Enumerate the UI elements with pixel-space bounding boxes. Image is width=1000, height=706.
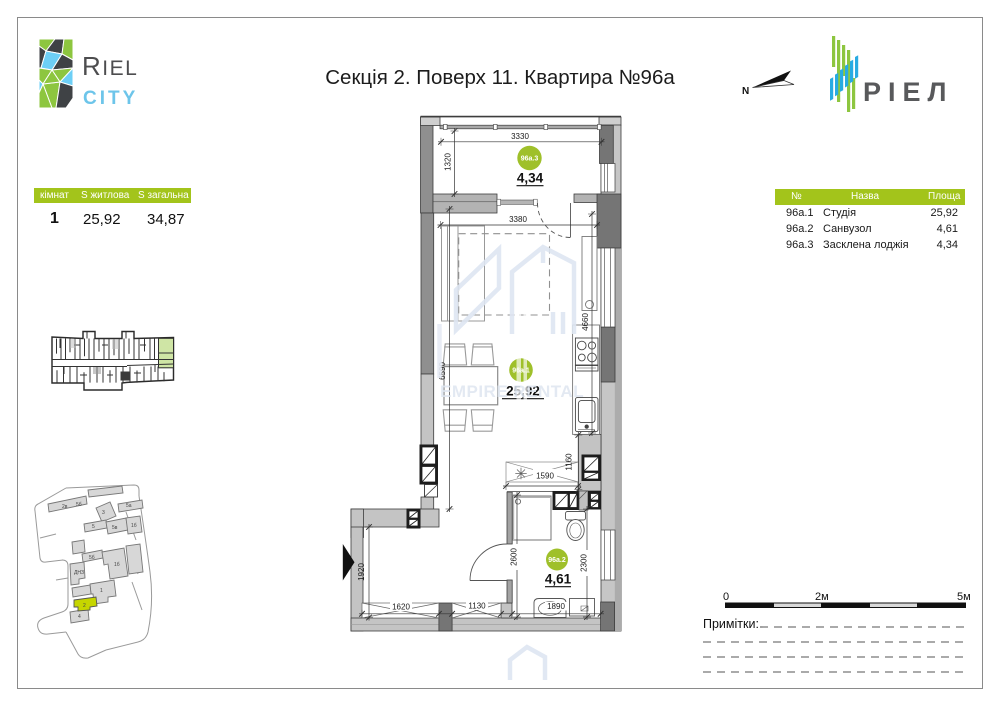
svg-text:1б: 1б (131, 523, 137, 529)
svg-text:5в: 5в (112, 525, 118, 531)
svg-text:96а.3: 96а.3 (521, 156, 539, 163)
svg-text:N: N (742, 86, 749, 97)
svg-text:2300: 2300 (579, 554, 588, 572)
svg-text:2в: 2в (62, 504, 68, 510)
svg-text:2: 2 (83, 603, 86, 609)
svg-text:3380: 3380 (509, 215, 527, 224)
svg-text:1320: 1320 (444, 153, 453, 171)
svg-text:1590: 1590 (536, 472, 554, 481)
svg-text:4660: 4660 (581, 313, 590, 331)
svg-text:EMPIRE RENTAL: EMPIRE RENTAL (440, 382, 584, 401)
svg-text:4,61: 4,61 (545, 572, 572, 587)
svg-text:1620: 1620 (392, 603, 410, 612)
svg-text:ДНЗ: ДНЗ (74, 570, 84, 576)
svg-text:5б: 5б (89, 555, 95, 561)
svg-text:3330: 3330 (511, 132, 529, 141)
svg-text:96а.1: 96а.1 (512, 368, 530, 375)
svg-text:5а: 5а (126, 503, 132, 509)
svg-text:2600: 2600 (509, 548, 518, 566)
svg-text:РІЕЛ: РІЕЛ (863, 77, 953, 107)
svg-text:5б: 5б (76, 502, 82, 508)
svg-text:1130: 1130 (468, 602, 486, 611)
svg-text:4: 4 (78, 614, 81, 620)
svg-text:1: 1 (100, 588, 103, 594)
svg-text:5: 5 (92, 524, 95, 530)
svg-text:1890: 1890 (547, 602, 565, 611)
svg-text:5м: 5м (957, 591, 971, 603)
svg-text:1160: 1160 (565, 453, 574, 471)
svg-text:0: 0 (723, 591, 729, 603)
svg-text:1б: 1б (114, 562, 120, 568)
svg-text:2м: 2м (815, 591, 829, 603)
svg-text:1920: 1920 (357, 563, 366, 581)
svg-text:RIEL: RIEL (82, 51, 138, 81)
svg-text:4,34: 4,34 (517, 171, 544, 186)
svg-text:CITY: CITY (83, 88, 138, 109)
svg-text:3: 3 (102, 510, 105, 516)
svg-text:96а.2: 96а.2 (548, 557, 566, 564)
